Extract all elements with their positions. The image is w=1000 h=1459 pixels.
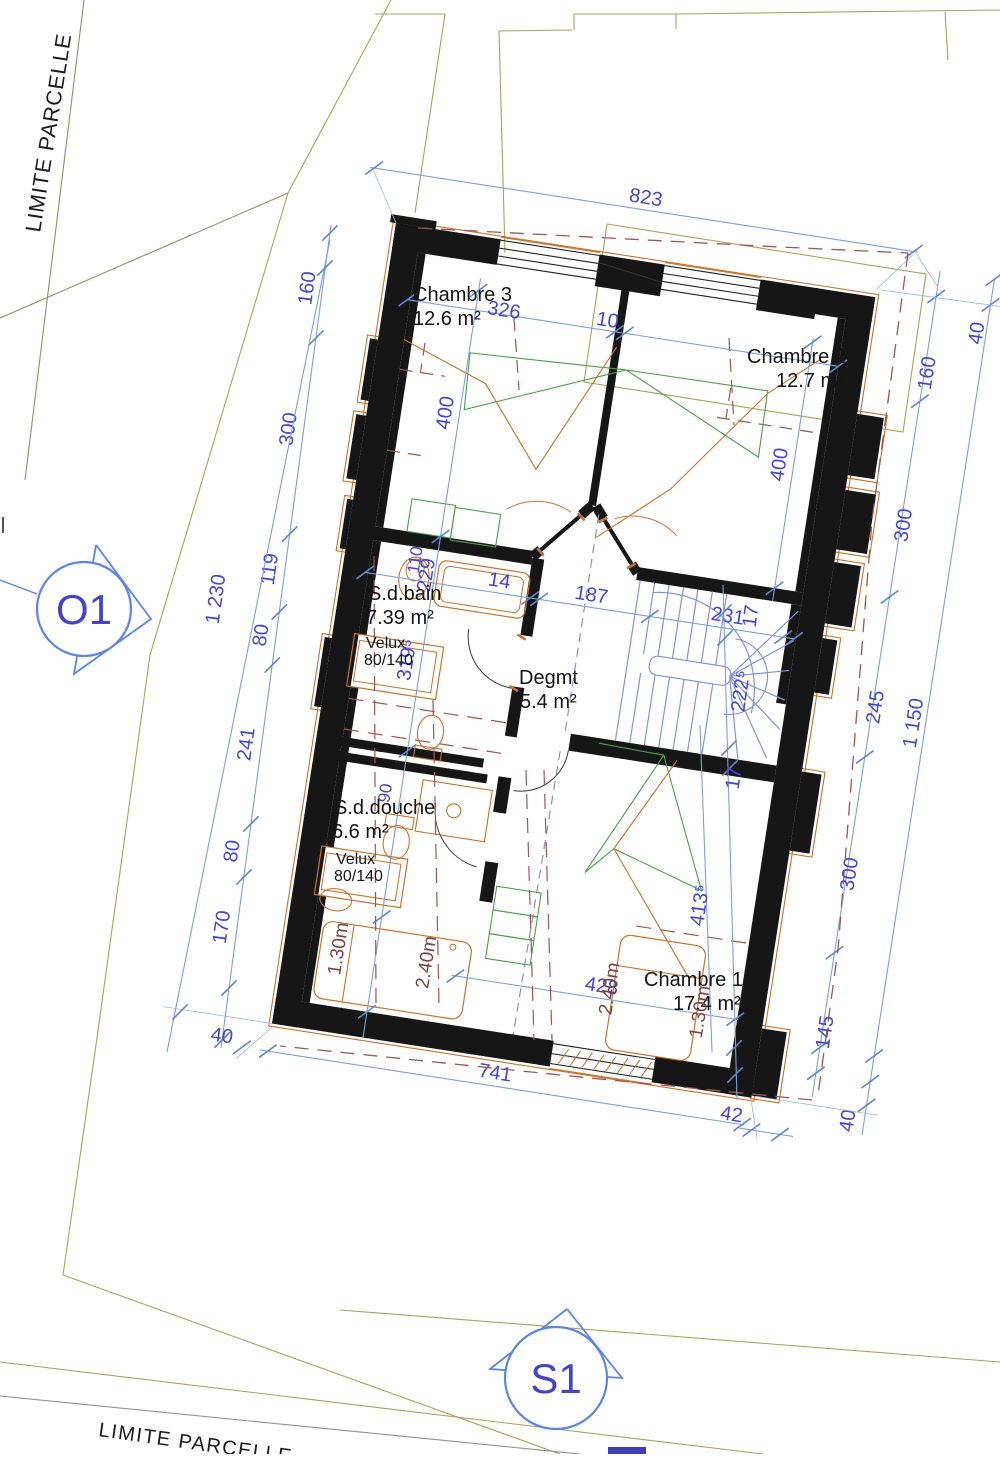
- svg-text:Chambre 2: Chambre 2: [747, 346, 846, 368]
- svg-text:6.6 m²: 6.6 m²: [332, 821, 389, 843]
- svg-text:7.39 m²: 7.39 m²: [366, 607, 434, 629]
- svg-text:17: 17: [722, 766, 747, 791]
- svg-text:241: 241: [233, 726, 259, 762]
- svg-text:S.d.bain: S.d.bain: [368, 583, 441, 605]
- svg-text:119: 119: [257, 552, 283, 587]
- svg-text:Chambre 3: Chambre 3: [413, 284, 512, 306]
- svg-text:Velux: Velux: [336, 851, 375, 868]
- svg-text:12.6 m²: 12.6 m²: [413, 308, 481, 330]
- svg-text:300: 300: [275, 411, 301, 447]
- svg-text:S.d.douche: S.d.douche: [334, 797, 435, 819]
- svg-text:10: 10: [595, 308, 620, 333]
- svg-text:5.4 m²: 5.4 m²: [520, 691, 577, 713]
- svg-text:O1: O1: [56, 586, 112, 633]
- svg-text:14: 14: [487, 568, 512, 593]
- svg-text:40: 40: [964, 321, 989, 346]
- svg-text:170: 170: [209, 909, 235, 945]
- svg-text:12.7 m²: 12.7 m²: [776, 370, 844, 392]
- svg-text:Degmt: Degmt: [519, 667, 578, 689]
- svg-text:40: 40: [209, 1024, 234, 1049]
- svg-text:S1: S1: [530, 1355, 581, 1402]
- svg-text:80/140: 80/140: [334, 868, 383, 885]
- svg-text:42: 42: [719, 1102, 744, 1127]
- svg-text:80: 80: [220, 839, 245, 864]
- svg-text:Velux: Velux: [366, 635, 405, 652]
- svg-text:80/140: 80/140: [364, 652, 413, 669]
- svg-text:17: 17: [739, 604, 764, 629]
- svg-text:160: 160: [294, 270, 320, 306]
